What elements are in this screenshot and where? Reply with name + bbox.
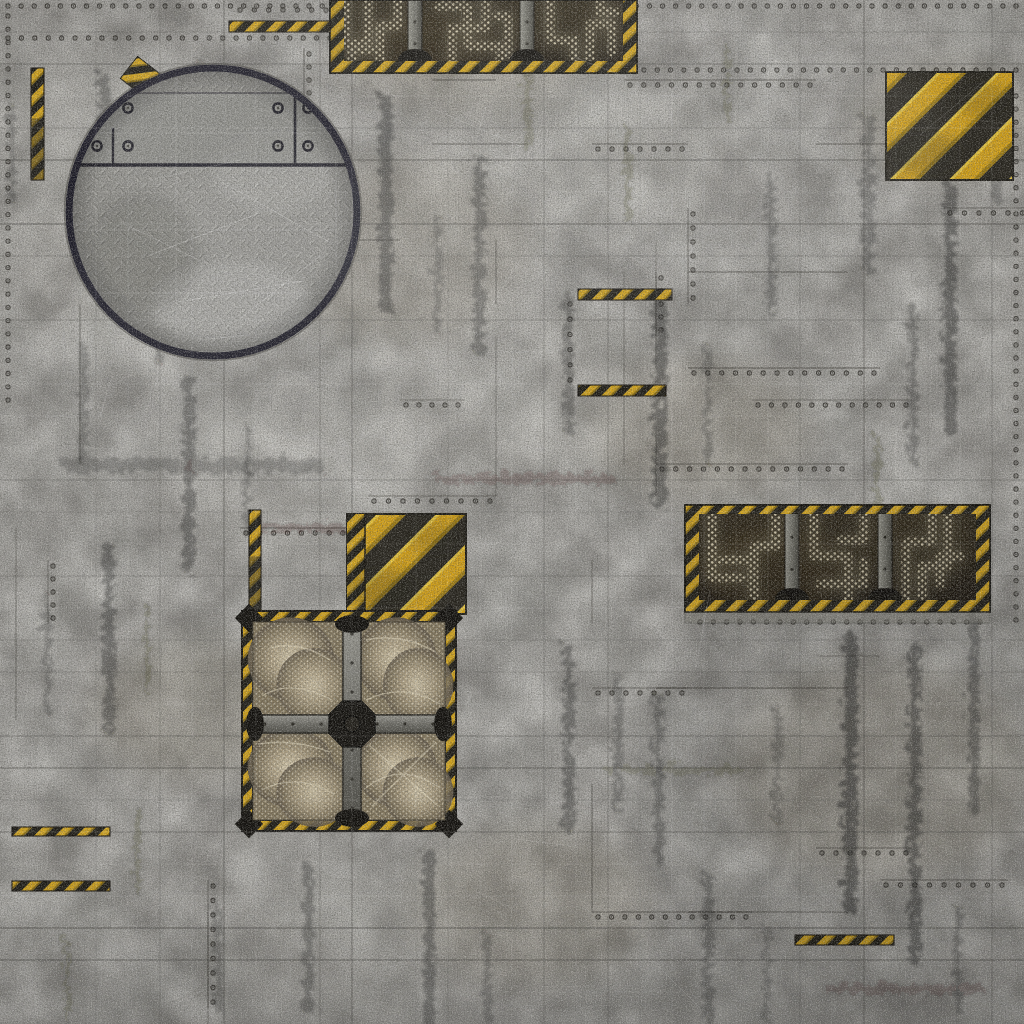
mat-render [0,0,1024,1024]
battle-mat-svg [0,0,1024,1024]
battle-mat-surface [0,0,1024,1024]
